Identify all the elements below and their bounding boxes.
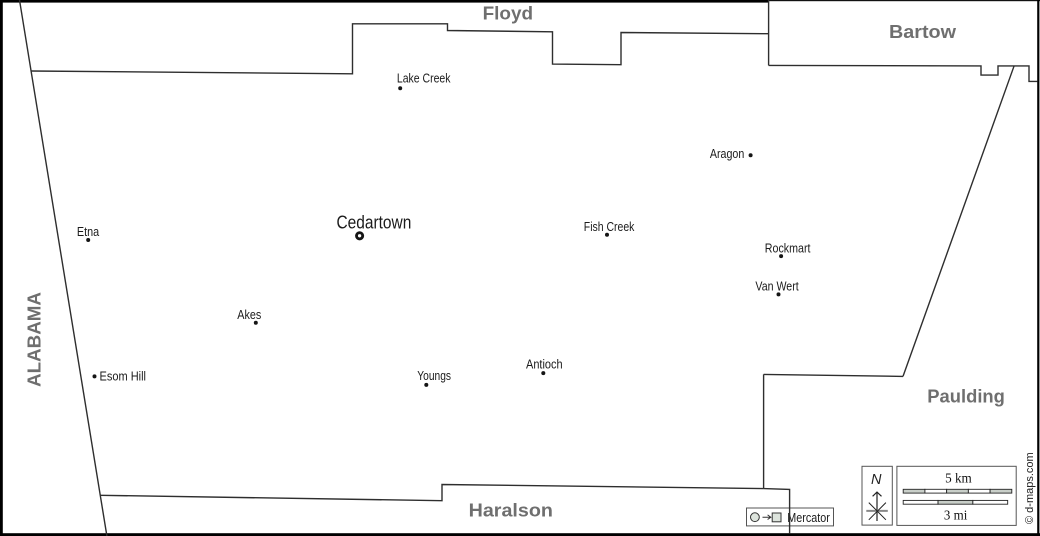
svg-text:Aragon: Aragon [710, 146, 744, 161]
svg-text:Haralson: Haralson [469, 500, 553, 521]
svg-text:Van Wert: Van Wert [755, 279, 799, 294]
svg-text:Cedartown: Cedartown [337, 213, 412, 233]
svg-text:Akes: Akes [237, 307, 261, 322]
svg-text:Antioch: Antioch [526, 357, 563, 372]
svg-text:Paulding: Paulding [927, 386, 1005, 407]
svg-text:Fish Creek: Fish Creek [584, 219, 635, 234]
svg-text:Youngs: Youngs [417, 368, 451, 383]
svg-text:Floyd: Floyd [483, 3, 533, 24]
svg-text:Rockmart: Rockmart [765, 241, 811, 256]
svg-text:© d-maps.com: © d-maps.com [1024, 452, 1036, 524]
svg-text:N: N [871, 472, 882, 488]
svg-text:Mercator: Mercator [787, 510, 830, 525]
svg-text:Esom Hill: Esom Hill [100, 369, 147, 384]
svg-text:5 km: 5 km [945, 471, 972, 486]
svg-text:Lake Creek: Lake Creek [397, 71, 451, 86]
svg-text:Etna: Etna [77, 224, 100, 239]
svg-text:3 mi: 3 mi [944, 509, 968, 524]
svg-text:Bartow: Bartow [889, 21, 957, 42]
svg-text:ALABAMA: ALABAMA [24, 292, 45, 387]
